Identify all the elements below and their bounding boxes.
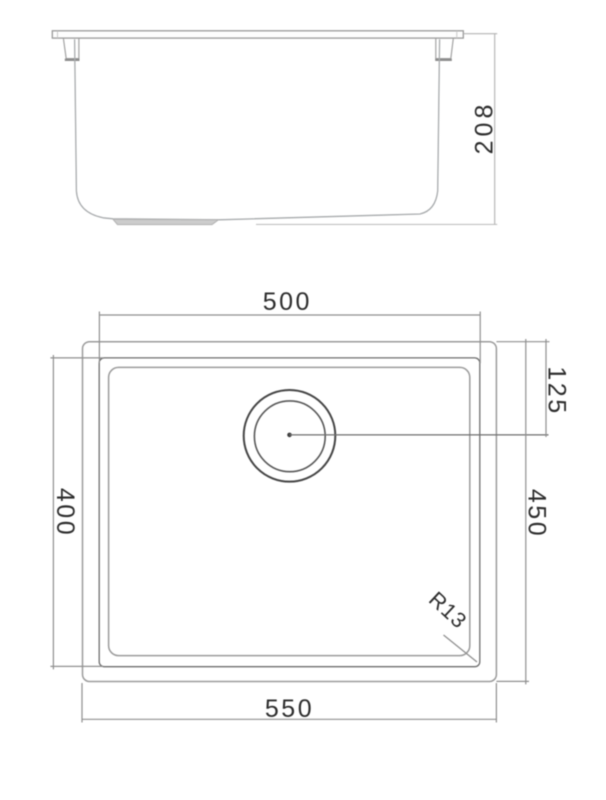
svg-text:125: 125 [543,366,571,415]
svg-text:400: 400 [51,488,79,537]
svg-text:500: 500 [263,288,312,316]
svg-text:R13: R13 [424,587,471,634]
svg-text:450: 450 [522,489,550,538]
svg-text:208: 208 [471,101,499,155]
svg-text:550: 550 [265,695,314,723]
